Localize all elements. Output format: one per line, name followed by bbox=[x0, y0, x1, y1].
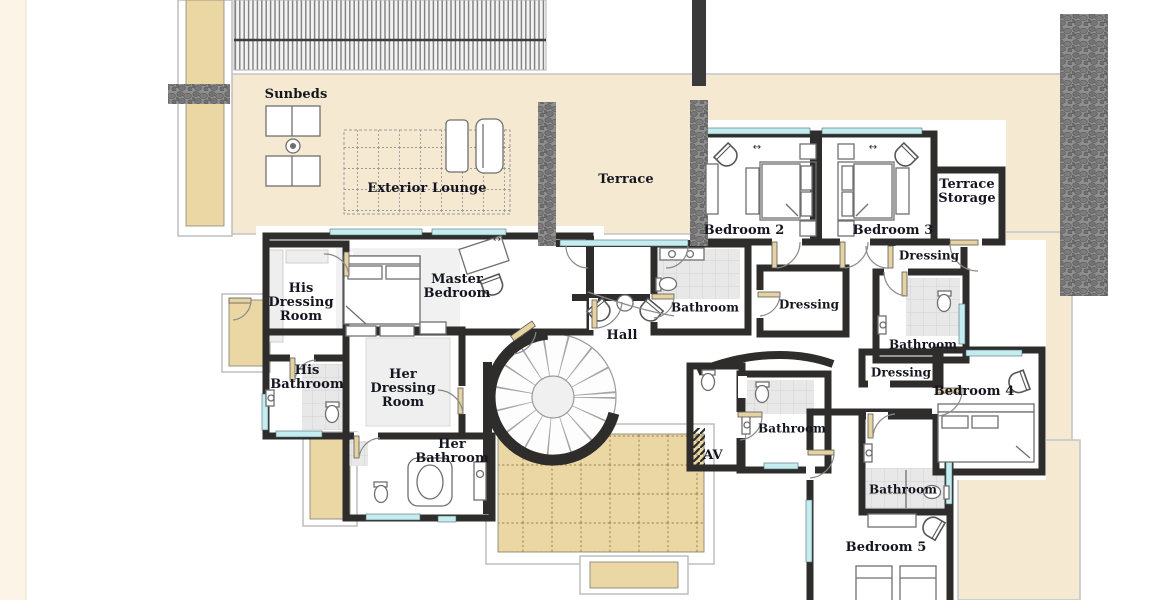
spiral-staircase bbox=[490, 334, 616, 460]
window-arrow-icon: ↔ bbox=[869, 142, 877, 153]
floor-plan-drawing: ↔ ↔ ↔ bbox=[0, 0, 1170, 600]
left-cream-strip bbox=[0, 0, 26, 600]
exterior-lounge-rug bbox=[344, 119, 510, 214]
her-dressing-island bbox=[366, 338, 450, 426]
floor-plan-canvas: ↔ ↔ ↔ Sunbeds Exterior Lounge Terrace Te… bbox=[0, 0, 1170, 600]
stone-wall-topright bbox=[1060, 14, 1108, 296]
av-folding-door bbox=[691, 428, 705, 466]
tile-bathroom3 bbox=[906, 278, 960, 336]
wall-fin-top bbox=[692, 0, 706, 86]
his-dressing-shelf bbox=[286, 250, 328, 263]
pergola-roof bbox=[234, 0, 546, 70]
stone-pillar-left bbox=[538, 102, 556, 246]
stone-pillar-right bbox=[690, 100, 708, 246]
window-arrow-icon: ↔ bbox=[753, 142, 761, 153]
window-arrow-icon: ↔ bbox=[493, 234, 501, 245]
planter-topleft bbox=[178, 0, 232, 236]
his-dressing-closet bbox=[268, 250, 283, 342]
av-fixtures bbox=[702, 370, 716, 391]
stone-path-left bbox=[168, 84, 230, 104]
